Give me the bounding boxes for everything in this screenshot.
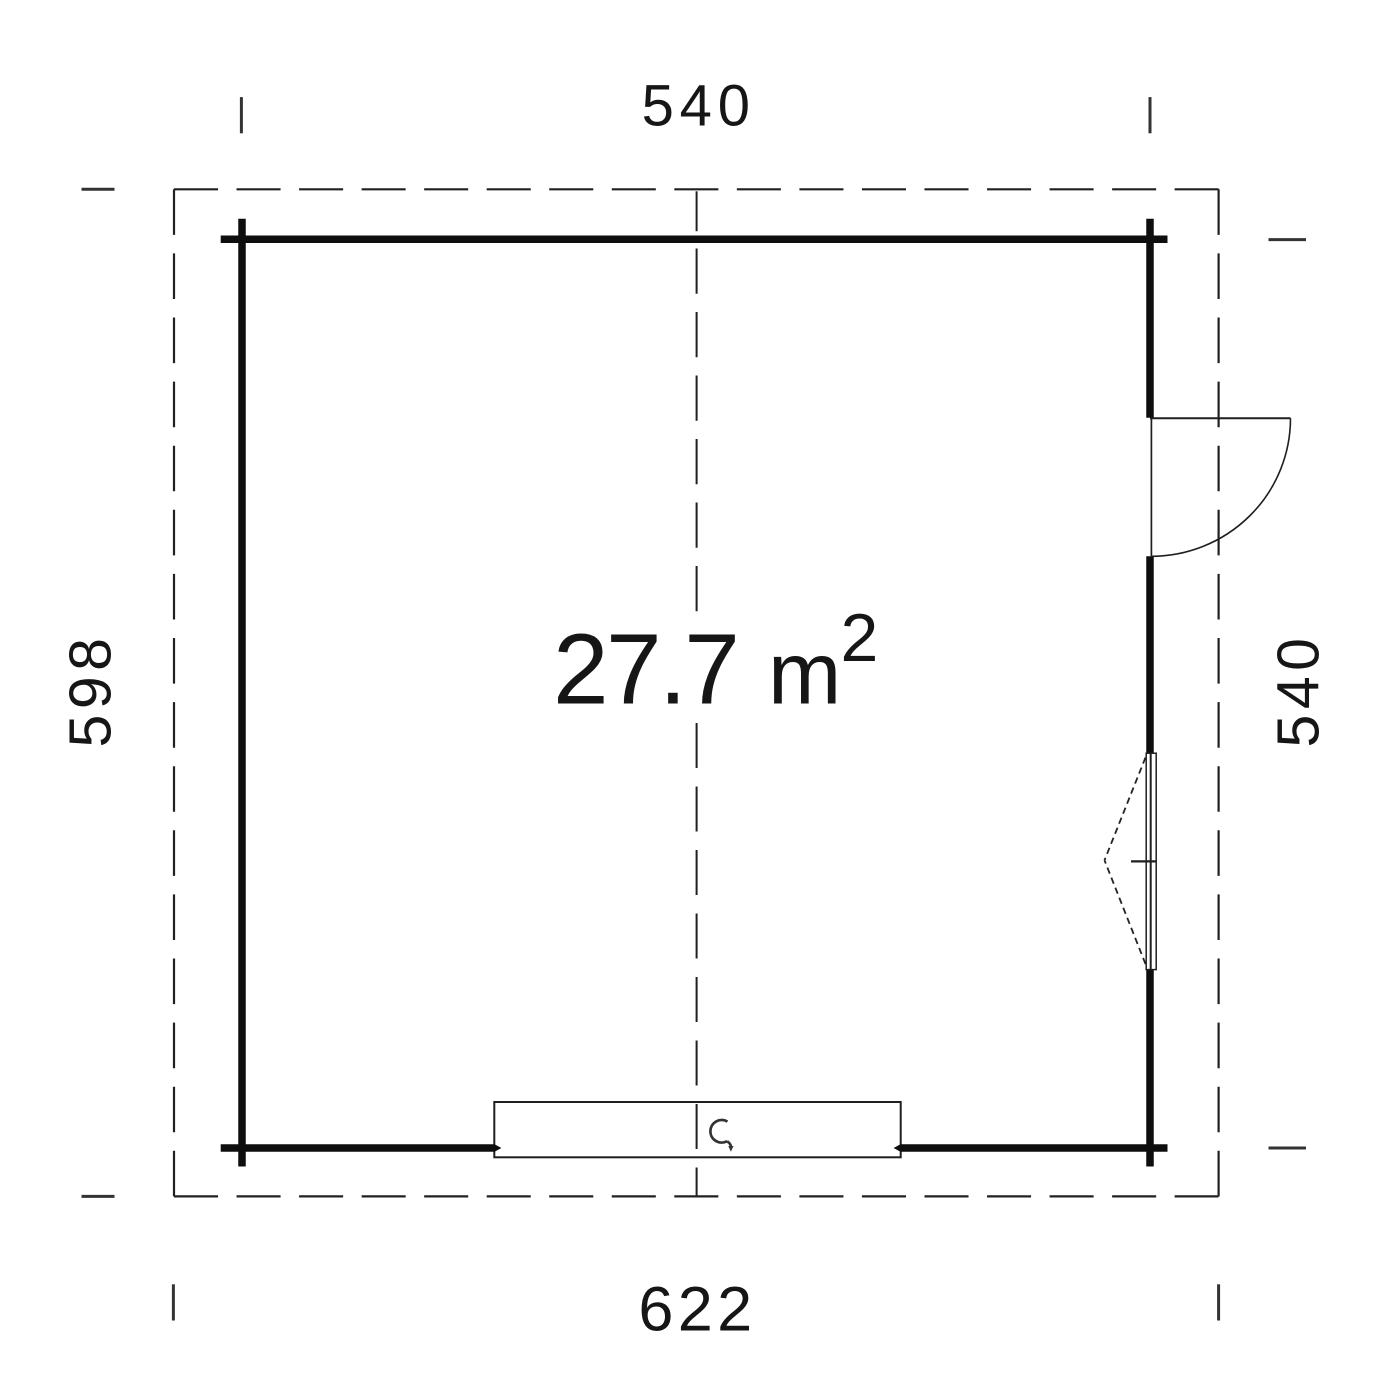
svg-text:540: 540 (642, 74, 756, 139)
svg-text:2: 2 (841, 600, 879, 676)
svg-text:598: 598 (58, 633, 124, 748)
svg-text:540: 540 (1266, 633, 1332, 748)
svg-text:m: m (768, 623, 841, 722)
svg-text:27.7: 27.7 (553, 613, 737, 725)
svg-text:622: 622 (638, 1275, 756, 1345)
